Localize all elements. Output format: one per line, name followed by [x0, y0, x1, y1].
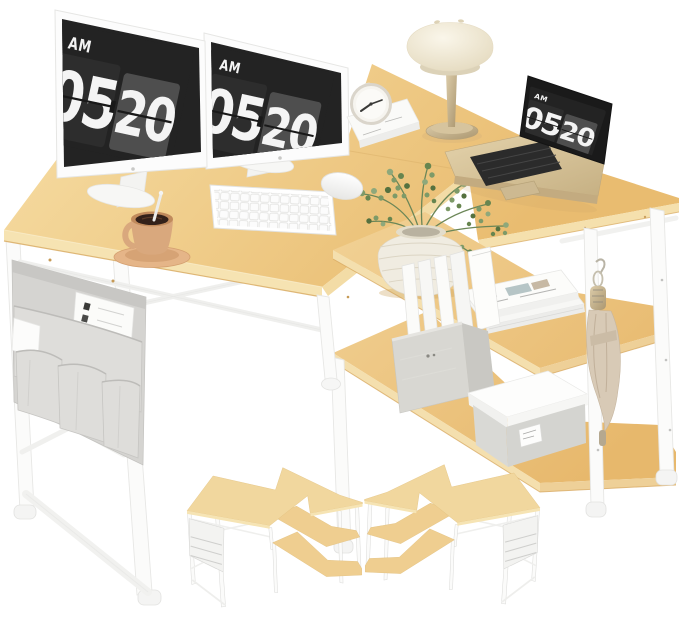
desk-scene: AM 05 20	[0, 0, 679, 617]
keyboard	[210, 185, 336, 235]
monitor-logo-icon	[278, 156, 282, 160]
storage-cube	[392, 247, 500, 413]
alarm-clock	[352, 82, 391, 123]
lamp-shade	[407, 23, 493, 72]
monitor-logo-icon	[131, 167, 135, 171]
product-photo: AM 05 20	[0, 0, 679, 617]
